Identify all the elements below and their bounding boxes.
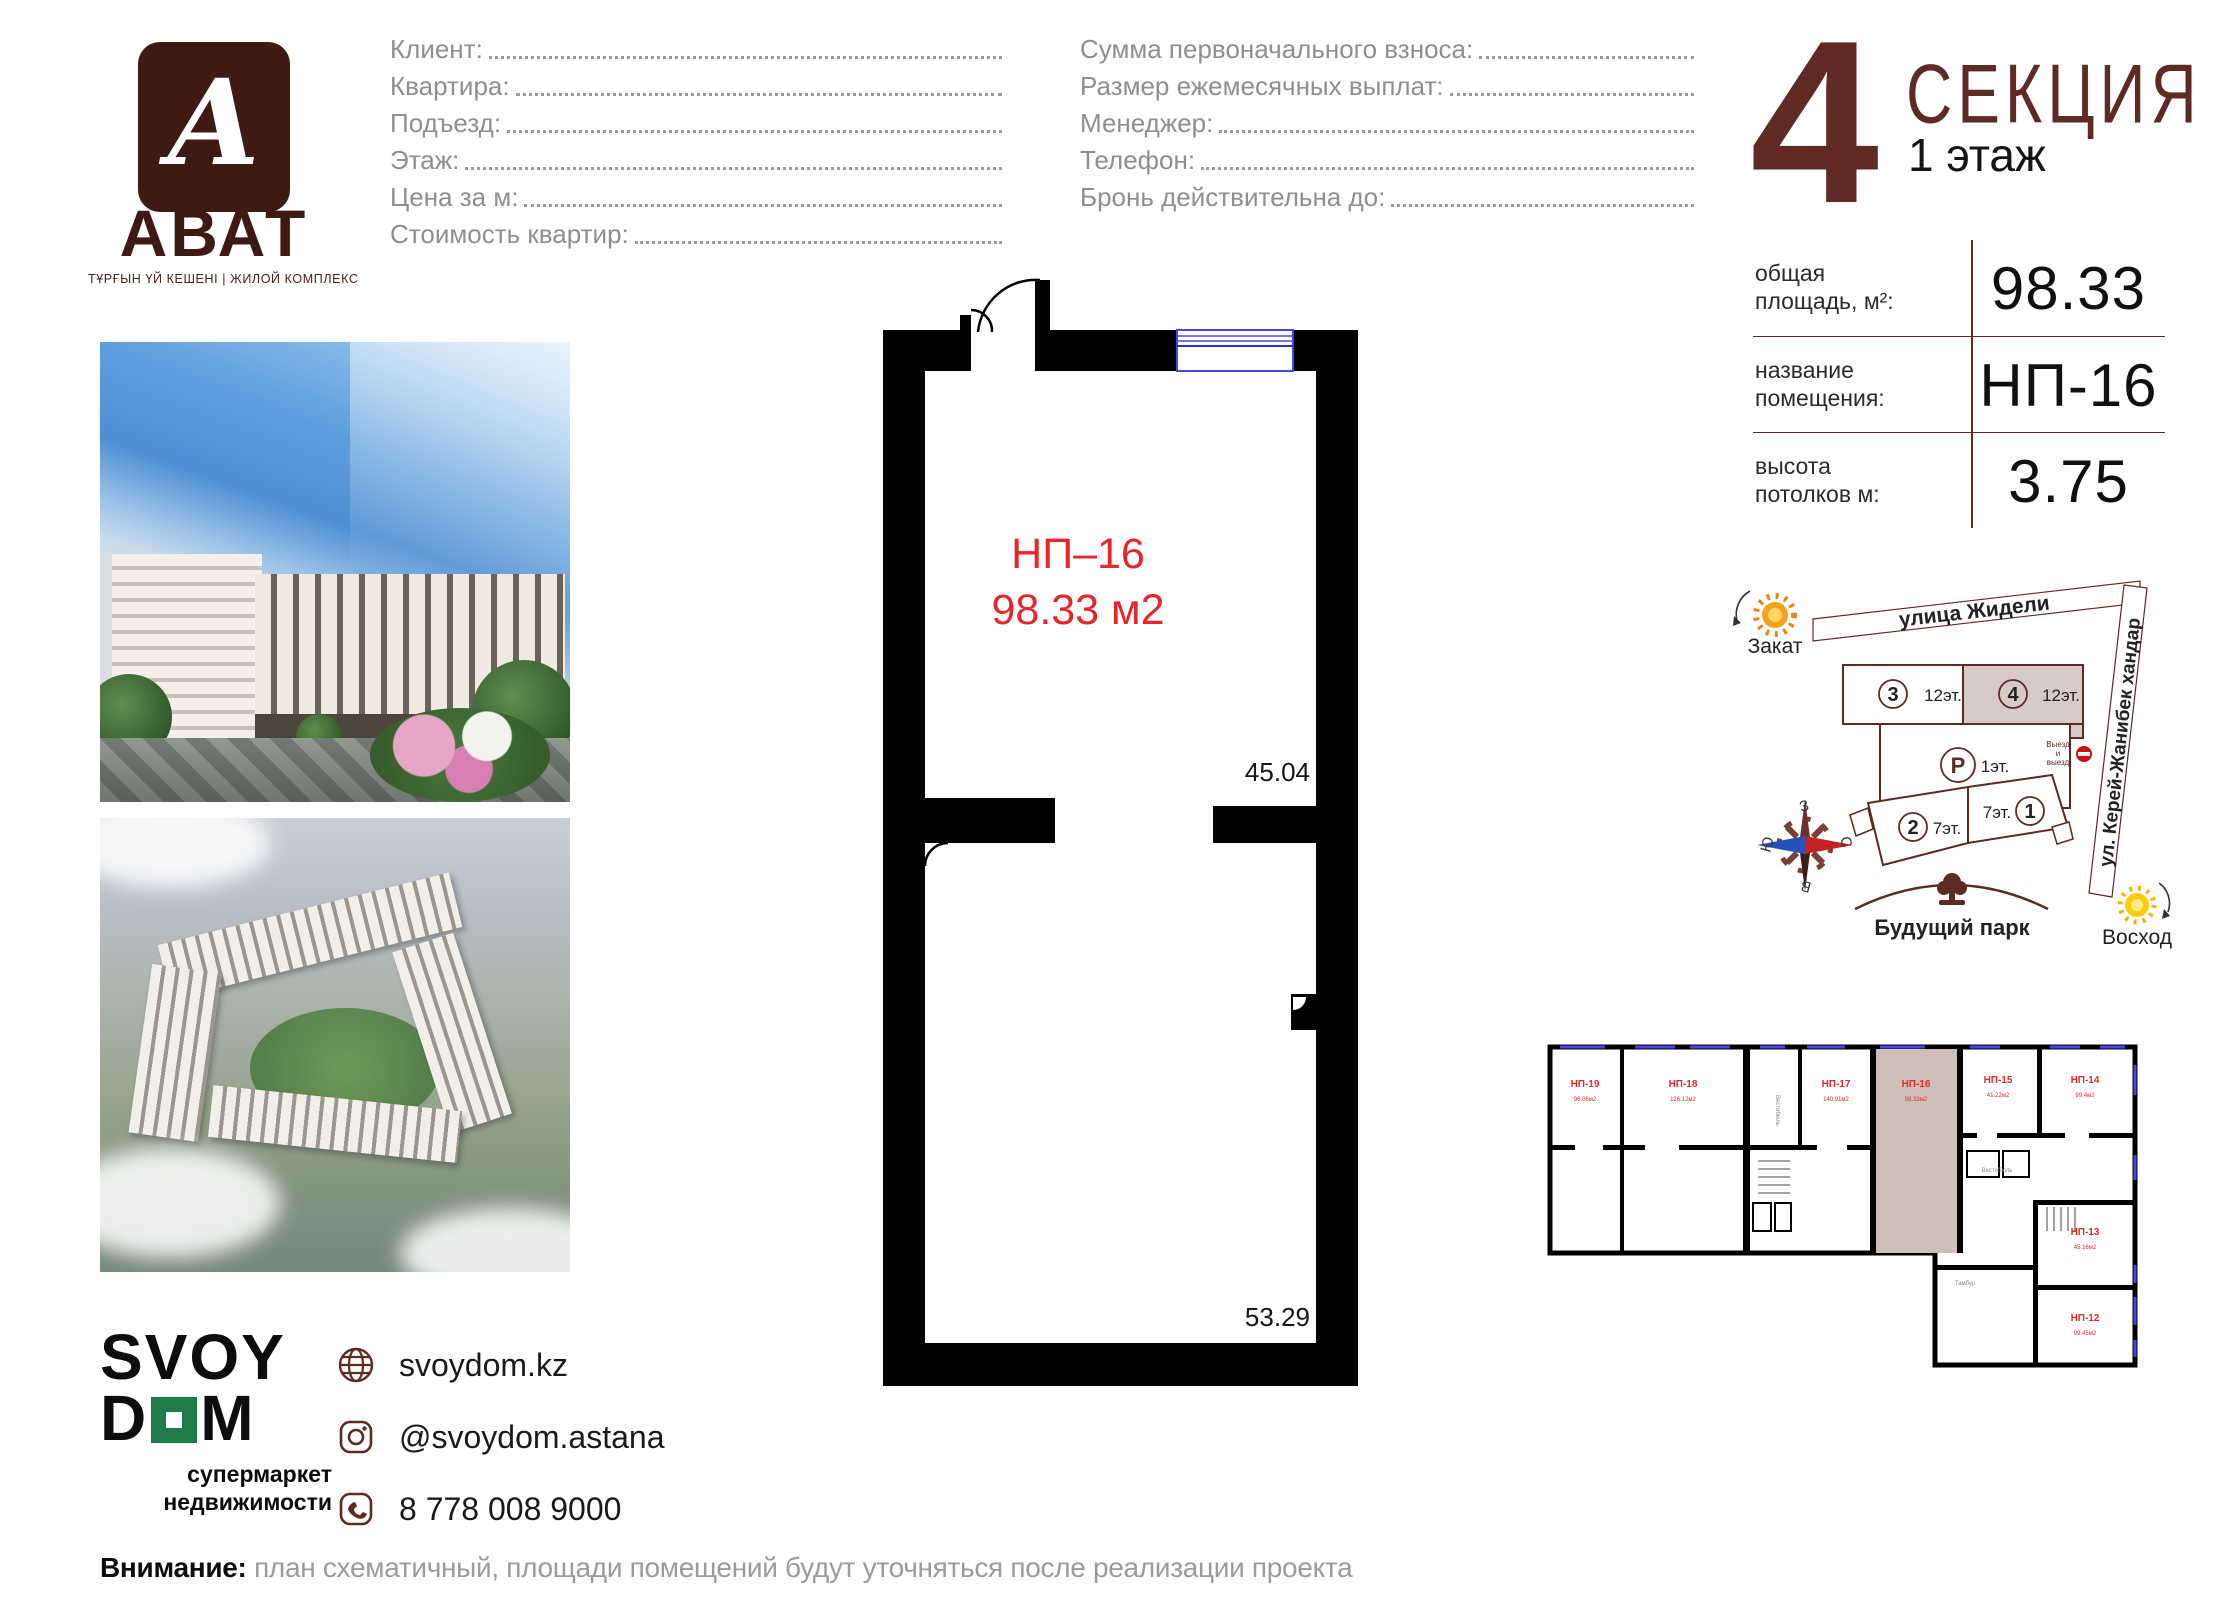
dotted-line (1391, 204, 1694, 207)
park-label: Будущий парк (1874, 915, 2030, 940)
door-swing-small (971, 310, 992, 332)
parking-letter: Р (1951, 753, 1966, 778)
ceiling-height-value: 3.75 (1972, 447, 2165, 516)
compass-north: С (1836, 835, 1855, 850)
phone-row: 8 778 008 9000 (333, 1484, 621, 1534)
section-3-floors: 12эт. (1924, 686, 1962, 705)
door-jamb-right (1035, 280, 1050, 371)
website-url[interactable]: svoydom.kz (399, 1347, 568, 1384)
dotted-line (507, 130, 1002, 133)
dotted-line (465, 167, 1002, 170)
form-field-manager: Менеджер: (1080, 102, 1694, 139)
form-field-monthly-payment: Размер ежемесячных выплат: (1080, 65, 1694, 102)
form-field-down-payment: Сумма первоначального взноса: (1080, 28, 1694, 65)
table-row-unit-name: названиепомещения: НП-16 (1753, 336, 2165, 433)
main-floor-plan: НП–16 98.33 м2 45.04 53.29 (880, 278, 1360, 1393)
plan-dim-top: 45.04 (1245, 757, 1310, 787)
form-field-reservation-until: Бронь действительна до: (1080, 176, 1694, 213)
building-photo-street (100, 342, 570, 802)
dotted-line (1450, 93, 1694, 96)
table-row-total-area: общаяплощадь, м²: 98.33 (1753, 240, 2165, 336)
total-area-value: 98.33 (1972, 254, 2165, 323)
unit-info-table: общаяплощадь, м²: 98.33 названиепомещени… (1753, 240, 2165, 528)
plan-dim-bottom: 53.29 (1245, 1302, 1310, 1332)
globe-icon (333, 1342, 379, 1388)
street-top-label: улица Жидели (1898, 592, 2051, 632)
section-floor: 1 этаж (1908, 128, 2046, 182)
form-field-apartment-cost: Стоимость квартир: (390, 213, 1002, 250)
door-swing-interior (925, 843, 948, 866)
sunrise-icon (2120, 883, 2170, 922)
abat-logo: А (138, 42, 290, 212)
section-title: СЕКЦИЯ (1906, 46, 2202, 120)
compass-west: З (1798, 797, 1811, 816)
dotted-line (635, 241, 1002, 244)
instagram-row: @svoydom.astana (333, 1412, 665, 1462)
dotted-line (524, 204, 1002, 207)
form-field-floor: Этаж: (390, 139, 1002, 176)
flower-bed (370, 708, 550, 802)
form-field-phone: Телефон: (1080, 139, 1694, 176)
section-4-floors: 12эт. (2042, 686, 2080, 705)
dotted-line (1219, 130, 1694, 133)
window (1177, 330, 1293, 371)
form-field-client: Клиент: (390, 28, 1002, 65)
mini-unit-name: НП-16 (1902, 1079, 1931, 1090)
form-field-apartment: Квартира: (390, 65, 1002, 102)
door-jamb-left (960, 315, 971, 333)
section-4-number: 4 (2007, 684, 2019, 706)
svoydom-logo: SVOY DM супермаркет недвижимости (100, 1328, 332, 1517)
mini-unit-area: 99.4м2 (2075, 1093, 2095, 1099)
street-right-label: ул. Керей-Жанибек хандар (2096, 617, 2145, 868)
mini-unit-area: 140.91м2 (1823, 1097, 1849, 1103)
abat-logo-glyph: А (166, 64, 262, 182)
no-entry-icon (2076, 746, 2092, 762)
exit-label-3: выезд (2047, 758, 2070, 767)
mini-room-label: Вестибюль (1774, 1095, 1780, 1126)
exit-label-1: Выезд (2046, 740, 2070, 749)
section-number: 4 (1750, 28, 1910, 218)
cloud (100, 1148, 280, 1258)
mini-unit-area: 45.16м2 (2074, 1245, 2097, 1251)
sunset-icon (1733, 591, 1794, 634)
plan-unit-area: 98.33 м2 (991, 586, 1164, 634)
section-2-floors: 7эт. (1933, 819, 1961, 838)
cloud (400, 1208, 570, 1272)
form-field-price-per-m: Цена за м: (390, 176, 1002, 213)
mini-unit-name: НП-19 (1571, 1079, 1600, 1090)
compass-rose: З С В Ю (1757, 797, 1855, 895)
mini-unit-area: 41.22м2 (1987, 1093, 2010, 1099)
mini-unit-area: 98.33м2 (1905, 1097, 1928, 1103)
section-1-floors: 7эт. (1983, 803, 2011, 822)
sunset-label: Закат (1748, 635, 1803, 658)
mini-unit-name: НП-17 (1822, 1079, 1851, 1090)
website-row: svoydom.kz (333, 1340, 568, 1390)
parking-floors: 1эт. (1981, 757, 2009, 776)
dotted-line (489, 56, 1002, 59)
dotted-line (1479, 56, 1694, 59)
sunrise-label: Восход (2102, 926, 2172, 949)
client-form-right: Сумма первоначального взноса: Размер еже… (1080, 28, 1694, 213)
mini-room-label: Вестибюль (1982, 1168, 2013, 1174)
phone-icon (333, 1486, 379, 1532)
door-swing-large (978, 280, 1040, 332)
mini-room-label: Тамбур (1955, 1281, 1976, 1287)
mini-unit-name: НП-18 (1669, 1079, 1698, 1090)
dotted-line (1201, 167, 1694, 170)
exit-label-2: и (2056, 749, 2060, 758)
site-map: улица Жидели ул. Керей-Жанибек хандар 3 … (1700, 575, 2210, 970)
instagram-icon (333, 1414, 379, 1460)
floor-overview-plan: НП-19 96.06м2 НП-18 126.12м2 НП-17 140.9… (1545, 1035, 2145, 1370)
unit-name-value: НП-16 (1972, 351, 2165, 420)
table-row-ceiling-height: высотапотолков м: 3.75 (1753, 432, 2165, 529)
abat-brand-tagline: ТҰРҒЫН ҮЙ КЕШЕНІ | ЖИЛОЙ КОМПЛЕКС (88, 272, 340, 286)
dotted-line (516, 93, 1002, 96)
mini-unit-area: 99.45м2 (2074, 1331, 2097, 1337)
abat-brand-name: АВАТ (88, 200, 340, 266)
compass-south: Ю (1757, 835, 1777, 854)
cloud (100, 818, 270, 888)
instagram-handle[interactable]: @svoydom.astana (399, 1419, 665, 1456)
phone-number[interactable]: 8 778 008 9000 (399, 1491, 621, 1528)
mini-unit-name: НП-15 (1984, 1075, 2013, 1086)
mini-unit-name: НП-12 (2071, 1313, 2100, 1324)
form-field-entrance: Подъезд: (390, 102, 1002, 139)
disclaimer: Внимание: план схематичный, площади поме… (100, 1552, 1700, 1584)
section-2-number: 2 (1907, 817, 1918, 839)
building-photo-aerial (100, 818, 570, 1272)
svoydom-green-square (151, 1397, 197, 1443)
plan-unit-name: НП–16 (1011, 530, 1145, 578)
mini-unit-area: 126.12м2 (1670, 1097, 1696, 1103)
mini-unit-name: НП-14 (2071, 1075, 2100, 1086)
mini-unit-area: 96.06м2 (1574, 1097, 1597, 1103)
mini-unit-name: НП-13 (2071, 1227, 2100, 1238)
section-1-number: 1 (2024, 801, 2035, 823)
park-tree-icon (1937, 873, 1967, 905)
compass-east: В (1799, 877, 1813, 896)
section-3-number: 3 (1887, 684, 1898, 706)
client-form-left: Клиент: Квартира: Подъезд: Этаж: Цена за… (390, 28, 1002, 250)
